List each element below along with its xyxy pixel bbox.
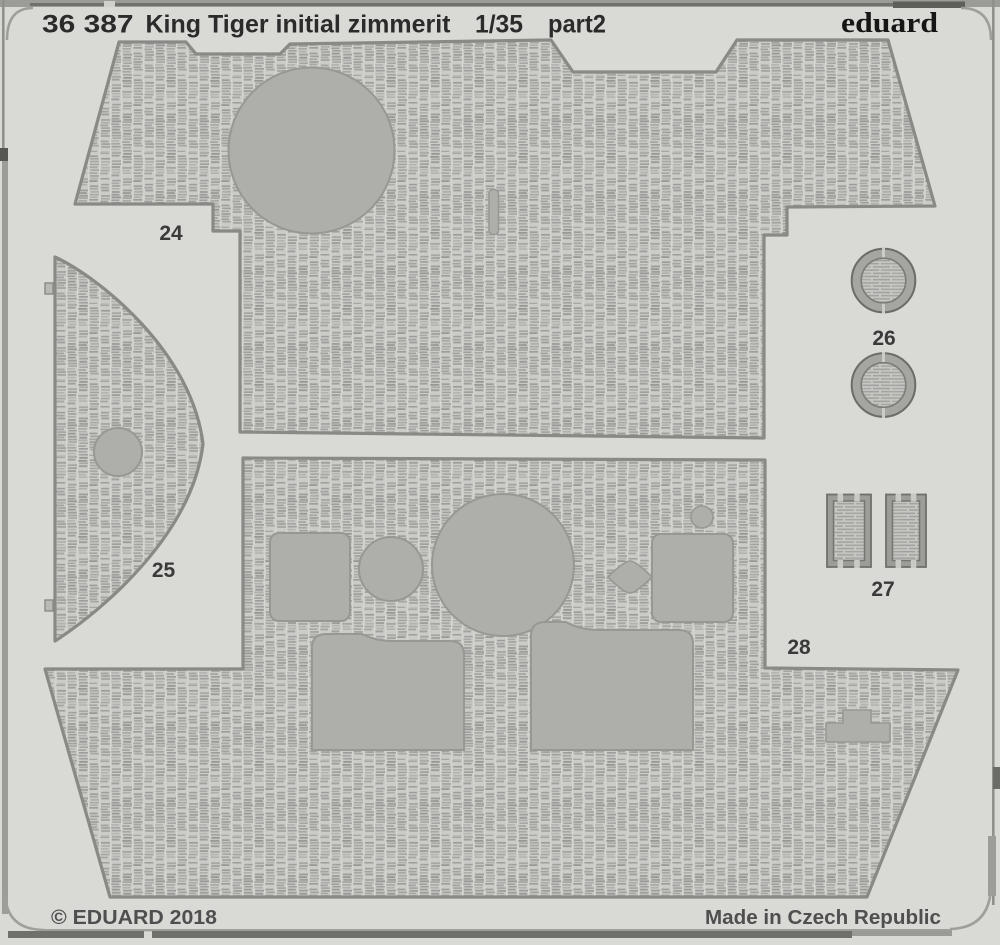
svg-text:eduard: eduard: [841, 8, 938, 39]
svg-text:Made in Czech Republic: Made in Czech Republic: [705, 907, 941, 929]
svg-text:36 387: 36 387: [42, 11, 134, 39]
svg-text:© EDUARD 2018: © EDUARD 2018: [51, 907, 217, 929]
svg-text:King Tiger initial zimmerit: King Tiger initial zimmerit: [146, 11, 452, 39]
svg-text:24: 24: [159, 222, 183, 245]
svg-text:27: 27: [871, 578, 894, 601]
svg-text:26: 26: [872, 327, 895, 350]
svg-text:25: 25: [152, 559, 176, 582]
svg-text:part2: part2: [548, 11, 606, 39]
svg-text:28: 28: [787, 636, 811, 659]
svg-text:1/35: 1/35: [475, 11, 523, 39]
